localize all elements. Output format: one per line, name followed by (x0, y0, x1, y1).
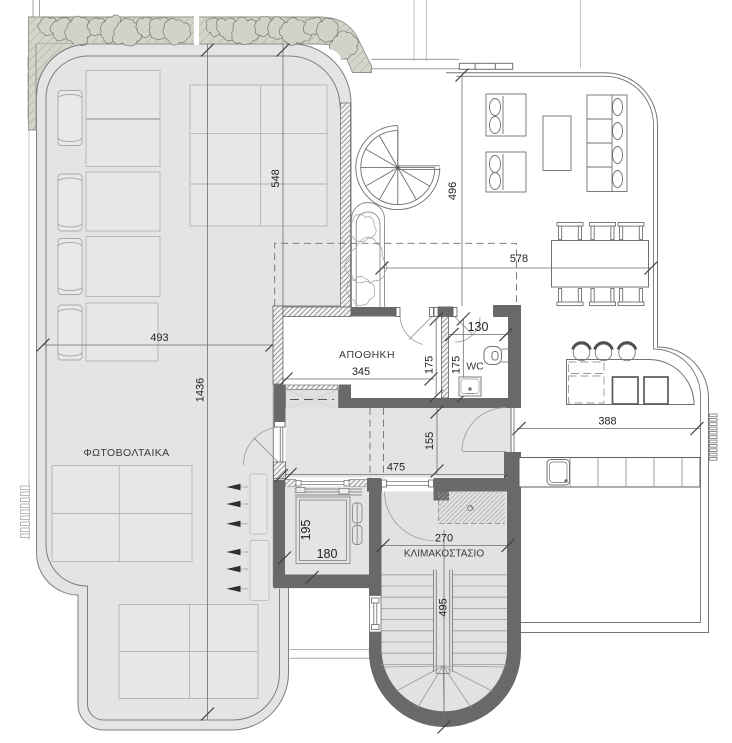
svg-text:130: 130 (468, 320, 489, 334)
svg-text:175: 175 (451, 356, 463, 374)
svg-text:ΦΩΤΟΒΟΛΤΑΙΚΑ: ΦΩΤΟΒΟΛΤΑΙΚΑ (83, 447, 169, 459)
svg-text:175: 175 (424, 356, 436, 374)
svg-text:495: 495 (438, 598, 450, 616)
svg-text:ΑΠΟΘΗΚΗ: ΑΠΟΘΗΚΗ (339, 349, 395, 361)
svg-text:195: 195 (299, 520, 313, 541)
svg-text:345: 345 (352, 366, 370, 378)
svg-text:1436: 1436 (195, 378, 207, 402)
svg-text:388: 388 (598, 416, 616, 428)
svg-text:578: 578 (510, 253, 528, 265)
svg-text:548: 548 (270, 169, 282, 187)
svg-text:496: 496 (447, 182, 459, 200)
svg-text:WC: WC (466, 361, 484, 373)
svg-text:155: 155 (424, 432, 436, 450)
svg-text:493: 493 (150, 332, 168, 344)
svg-text:475: 475 (387, 462, 405, 474)
svg-text:180: 180 (317, 547, 338, 561)
